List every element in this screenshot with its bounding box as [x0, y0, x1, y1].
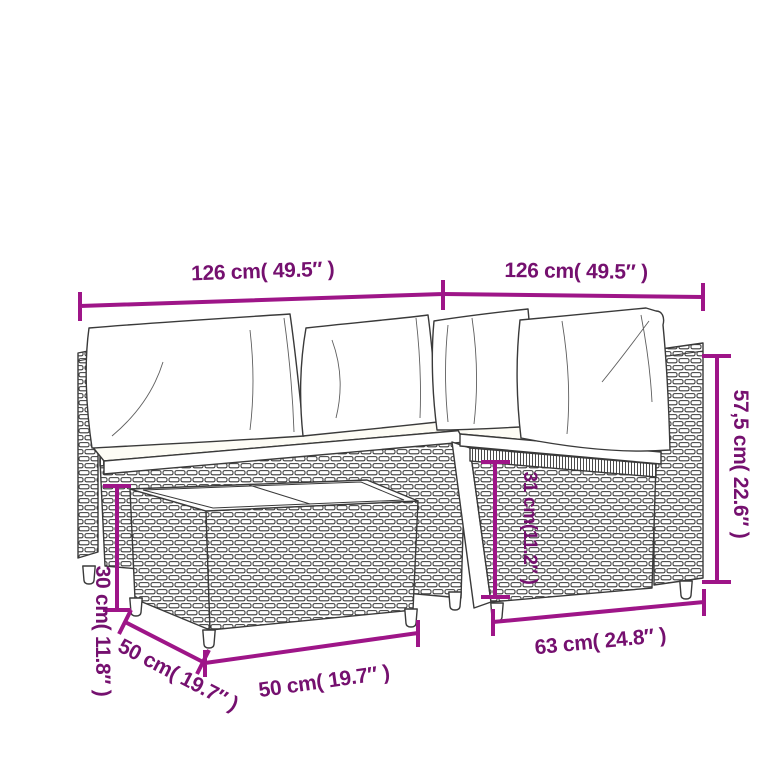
dimension-label-section-depth: 63 cm( 24.8″ )	[534, 624, 668, 660]
dimension-label-total-height: 57,5 cm( 22.6″ )	[729, 390, 752, 539]
table-right-foot	[405, 609, 417, 627]
pillow-left	[86, 314, 304, 448]
sofa-line-art	[78, 308, 703, 648]
dimension-left-section-width: 126 cm( 49.5″ )	[80, 258, 443, 321]
sofa-corner-foot	[449, 592, 461, 610]
sofa-set-illustration: 126 cm( 49.5″ ) 126 cm( 49.5″ ) 57,5 cm(…	[0, 0, 767, 767]
dimension-label-left-section-width: 126 cm( 49.5″ )	[191, 258, 335, 286]
table-front-face	[206, 501, 418, 630]
dimension-label-seat-height: 31 cm(11.2″ )	[519, 472, 540, 585]
coffee-table	[130, 480, 418, 648]
table-front-foot	[203, 630, 215, 648]
sofa-right-foot	[680, 581, 692, 599]
dimension-label-table-height: 30 cm( 11.8″ )	[91, 566, 114, 697]
pillow-right	[517, 308, 670, 451]
dimension-label-right-section-width: 126 cm( 49.5″ )	[504, 259, 648, 284]
dimension-label-table-depth: 50 cm( 19.7″ )	[114, 635, 242, 716]
dimension-right-section-width: 126 cm( 49.5″ )	[443, 259, 703, 311]
dimension-total-height: 57,5 cm( 22.6″ )	[702, 356, 752, 582]
product-dimension-diagram: 126 cm( 49.5″ ) 126 cm( 49.5″ ) 57,5 cm(…	[0, 0, 767, 767]
table-back-foot	[130, 598, 142, 616]
dimension-label-table-width: 50 cm( 19.7″ )	[257, 661, 391, 702]
dimension-table-width: 50 cm( 19.7″ )	[205, 620, 418, 702]
